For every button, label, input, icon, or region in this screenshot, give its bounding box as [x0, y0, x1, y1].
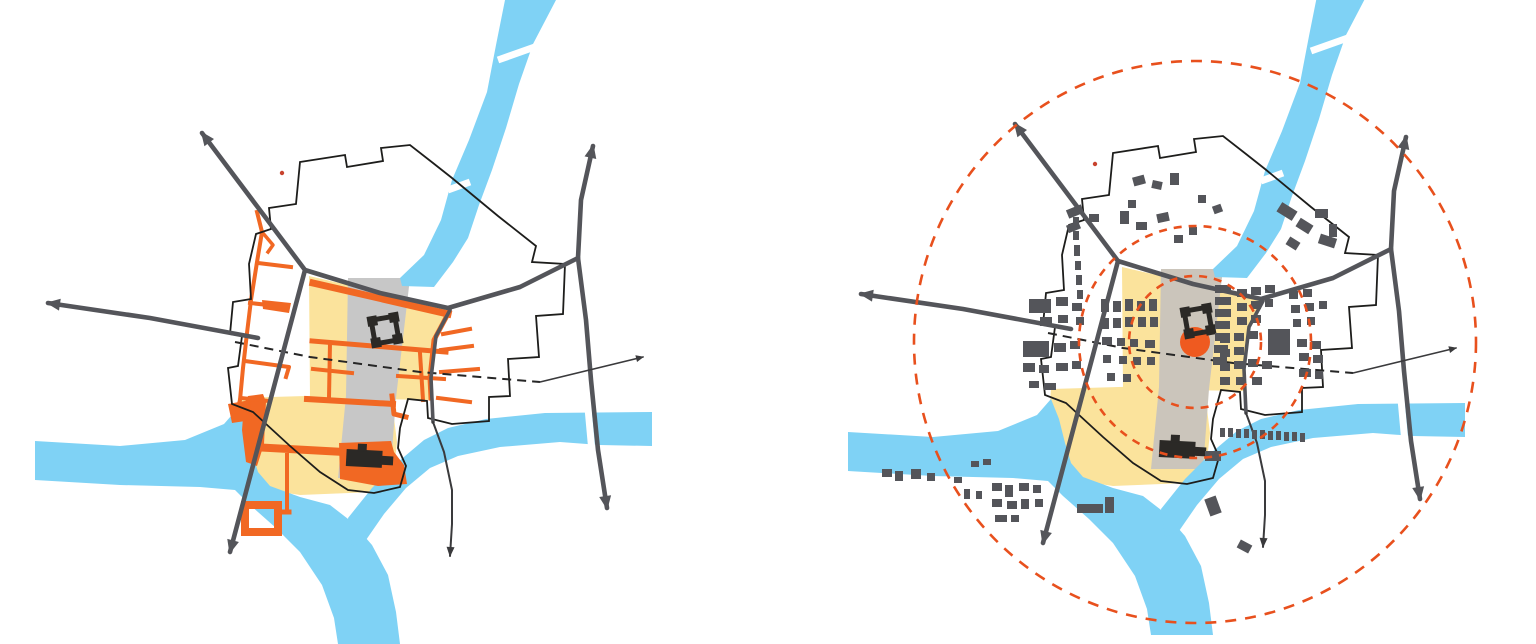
building	[1289, 291, 1298, 299]
orange-street	[258, 263, 291, 267]
base-map	[35, 0, 652, 644]
building	[1220, 335, 1230, 343]
building	[1029, 381, 1039, 388]
building	[1073, 217, 1079, 227]
building	[911, 469, 921, 479]
building	[1292, 432, 1297, 441]
building	[1198, 195, 1206, 203]
small-red-dot	[1093, 162, 1097, 166]
building	[1130, 339, 1138, 347]
building	[1237, 317, 1247, 325]
orange-street	[441, 346, 472, 350]
building	[1244, 429, 1249, 438]
building	[1291, 305, 1300, 313]
building	[1011, 515, 1019, 522]
orange-street	[252, 447, 345, 452]
building	[1234, 361, 1244, 369]
building	[1102, 337, 1112, 345]
building	[1237, 539, 1253, 553]
building	[1074, 245, 1080, 256]
building	[1268, 431, 1273, 440]
building	[1293, 319, 1301, 327]
building	[1204, 495, 1221, 516]
road-5	[578, 146, 607, 508]
building	[1105, 497, 1114, 513]
building	[1237, 303, 1247, 311]
building	[954, 477, 962, 483]
building	[1075, 261, 1081, 270]
building	[1303, 289, 1312, 297]
building	[1138, 317, 1146, 327]
building	[1145, 340, 1155, 348]
building	[1021, 499, 1029, 509]
building	[1205, 451, 1221, 461]
building	[1019, 483, 1029, 491]
urban-analysis-diagram	[0, 0, 1536, 644]
building	[1133, 357, 1141, 365]
building	[1150, 317, 1158, 327]
building	[1262, 361, 1272, 369]
building	[1039, 365, 1049, 373]
building	[1265, 285, 1275, 293]
building	[995, 515, 1007, 522]
building	[971, 461, 979, 467]
building	[1072, 361, 1081, 369]
building	[976, 491, 982, 499]
road-1	[1015, 124, 1118, 261]
building	[1220, 377, 1230, 385]
building	[1072, 303, 1082, 311]
building	[1023, 363, 1035, 372]
building	[992, 483, 1002, 491]
building	[1117, 338, 1125, 346]
river-bridge-gap	[1401, 399, 1405, 443]
building	[1215, 321, 1230, 329]
map-panel-left	[0, 0, 768, 644]
building	[1315, 209, 1328, 218]
building	[1147, 357, 1155, 365]
building	[1189, 227, 1197, 235]
building	[1023, 341, 1049, 357]
building	[1149, 299, 1157, 311]
building	[1156, 212, 1170, 223]
building	[1107, 373, 1115, 381]
building	[1329, 224, 1337, 237]
building	[1029, 299, 1051, 313]
building	[927, 473, 935, 481]
building	[1007, 501, 1017, 509]
building	[1311, 341, 1321, 349]
building	[1251, 287, 1261, 295]
building	[1215, 297, 1231, 305]
building	[1297, 339, 1307, 347]
building	[1234, 347, 1244, 355]
building	[1284, 432, 1289, 441]
building	[1033, 485, 1041, 493]
building	[1136, 222, 1147, 230]
building	[1315, 371, 1323, 379]
building	[1119, 356, 1127, 364]
building	[1132, 175, 1146, 187]
building	[1174, 235, 1183, 243]
building	[1286, 237, 1301, 251]
building	[1058, 315, 1068, 323]
road-3	[48, 303, 258, 338]
building	[1252, 377, 1262, 385]
building	[1054, 343, 1066, 352]
river-bridge-gap	[588, 408, 592, 452]
building	[1215, 309, 1231, 317]
orange-street	[443, 329, 470, 334]
building	[1319, 301, 1327, 309]
orange-street	[329, 343, 330, 398]
map-panel-right	[768, 0, 1536, 644]
building	[1248, 331, 1258, 339]
building	[1151, 180, 1162, 190]
building	[1252, 430, 1257, 439]
building	[1040, 317, 1052, 326]
building	[1299, 353, 1309, 361]
building	[1236, 429, 1241, 438]
building	[1220, 428, 1225, 437]
building	[882, 469, 892, 477]
building	[1005, 485, 1013, 497]
building	[1220, 349, 1230, 357]
building	[1077, 504, 1103, 513]
building	[1101, 299, 1109, 312]
building	[1101, 318, 1109, 329]
building	[983, 459, 991, 465]
building	[1295, 218, 1313, 234]
building	[1056, 297, 1068, 306]
orange-street	[237, 212, 262, 412]
road-5	[1391, 137, 1420, 499]
building	[1220, 363, 1230, 371]
building	[1170, 173, 1179, 185]
building	[1265, 299, 1273, 307]
building	[1228, 428, 1233, 437]
building	[1044, 383, 1056, 390]
building	[1056, 363, 1068, 371]
building	[1089, 214, 1099, 222]
building	[1300, 433, 1305, 442]
building	[1313, 355, 1323, 363]
building	[1073, 231, 1079, 240]
building	[1035, 499, 1043, 507]
building	[1076, 275, 1082, 285]
building	[964, 489, 970, 499]
building	[1212, 204, 1223, 215]
building	[1268, 329, 1290, 355]
orange-street	[262, 232, 273, 252]
road-1	[202, 133, 305, 270]
building	[1234, 333, 1244, 341]
building	[1276, 431, 1281, 440]
building	[1113, 318, 1121, 328]
building	[1123, 374, 1131, 382]
building	[1128, 200, 1136, 208]
building	[1113, 301, 1121, 312]
building	[992, 499, 1002, 507]
building	[1125, 299, 1133, 311]
building	[1120, 211, 1129, 224]
building	[895, 471, 903, 481]
building	[1103, 355, 1111, 363]
small-red-dot	[280, 171, 284, 175]
orange-street	[438, 398, 470, 402]
orange-street	[441, 369, 478, 372]
building	[1077, 290, 1083, 299]
